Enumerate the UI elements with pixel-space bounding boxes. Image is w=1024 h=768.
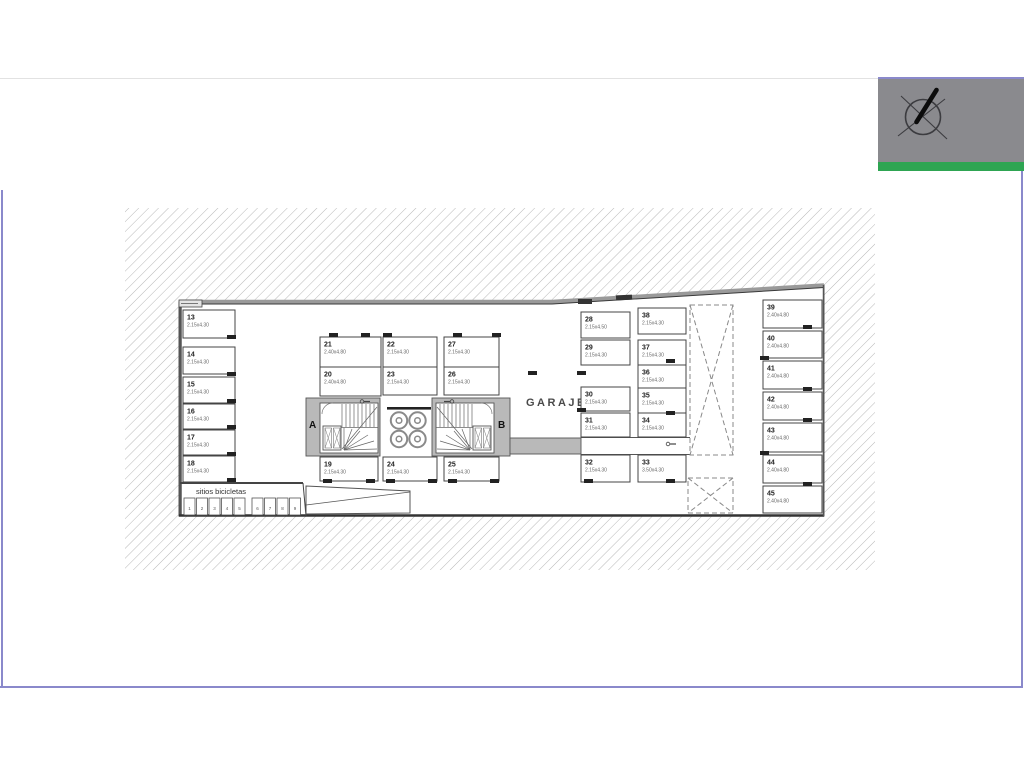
stall-32: 322.15x4.30 (581, 455, 630, 482)
stall-45: 452.40x4.80 (763, 486, 822, 513)
corner-tag (179, 300, 202, 307)
column-marker (803, 325, 812, 329)
stall-number: 31 (585, 418, 593, 425)
bike-slot: 1 (184, 498, 195, 515)
stall-number: 44 (767, 460, 775, 467)
stall-number: 40 (767, 336, 775, 343)
stall-number: 25 (448, 462, 456, 469)
bike-area-label: sitios bicicletas (196, 487, 246, 496)
stall-number: 43 (767, 428, 775, 435)
stall-dimension: 2.15x4.30 (448, 470, 470, 476)
stall-dimension: 2.15x4.30 (187, 443, 209, 449)
stall-number: 33 (642, 460, 650, 467)
stall-number: 28 (585, 317, 593, 324)
stall-29: 292.15x4.30 (581, 340, 630, 365)
stall-number: 30 (585, 392, 593, 399)
column-marker (453, 333, 462, 337)
stall-number: 32 (585, 460, 593, 467)
stall-number: 14 (187, 352, 195, 359)
stall-number: 23 (387, 372, 395, 379)
stall-dimension: 2.15x4.50 (585, 325, 607, 331)
stall-dimension: 2.40x4.80 (767, 405, 789, 411)
stall-number: 16 (187, 409, 195, 416)
column-marker (227, 372, 236, 376)
stall-36: 362.15x4.30 (638, 365, 686, 388)
stall-number: 26 (448, 372, 456, 379)
stall-19: 192.15x4.30 (320, 457, 378, 481)
stall-dimension: 2.40x4.80 (767, 468, 789, 474)
stall-dimension: 2.40x4.80 (324, 350, 346, 356)
bike-slot: 3 (209, 498, 220, 515)
stall-34: 342.15x4.30 (638, 413, 686, 437)
stair-core-b: B (432, 398, 510, 456)
page: A (0, 0, 1024, 768)
garaje-label: GARAJE (526, 397, 587, 409)
column-marker (383, 333, 392, 337)
column-marker (361, 333, 370, 337)
stall-35: 352.15x4.30 (638, 388, 686, 413)
stall-dimension: 2.15x4.30 (642, 321, 664, 327)
stall-number: 22 (387, 342, 395, 349)
column-marker (492, 333, 501, 337)
column-marker (386, 479, 395, 483)
stall-number: 24 (387, 462, 395, 469)
stall-41: 412.40x4.80 (763, 361, 822, 389)
stall-number: 39 (767, 305, 775, 312)
column-marker (666, 411, 675, 415)
stall-dimension: 2.40x4.80 (767, 374, 789, 380)
stall-33: 333.50x4.30 (638, 455, 686, 482)
stall-dimension: 2.40x4.80 (767, 313, 789, 319)
column-marker (577, 408, 586, 412)
stall-number: 15 (187, 382, 195, 389)
column-marker (577, 371, 586, 375)
column-marker (760, 356, 769, 360)
column-marker (760, 451, 769, 455)
stall-dimension: 2.15x4.30 (585, 426, 607, 432)
column-marker (528, 371, 537, 375)
stall-13: 132.15x4.30 (183, 310, 235, 338)
stall-number: 35 (642, 393, 650, 400)
stall-number: 38 (642, 313, 650, 320)
stall-17: 172.15x4.30 (183, 430, 235, 455)
stall-27: 272.15x4.30 (444, 337, 499, 367)
stall-dimension: 2.15x4.30 (448, 380, 470, 386)
column-marker (227, 425, 236, 429)
stall-dimension: 2.15x4.30 (585, 468, 607, 474)
entrance-ramp (306, 486, 410, 514)
bike-slot: 8 (277, 498, 288, 515)
bike-slot: 5 (234, 498, 245, 515)
stair-core-b-label: B (498, 420, 505, 431)
stall-dimension: 2.15x4.30 (387, 380, 409, 386)
stall-number: 37 (642, 345, 650, 352)
stall-number: 42 (767, 397, 775, 404)
stall-26: 262.15x4.30 (444, 367, 499, 395)
stall-dimension: 2.15x4.30 (187, 390, 209, 396)
stall-dimension: 2.15x4.30 (448, 350, 470, 356)
stall-number: 29 (585, 345, 593, 352)
stall-42: 422.40x4.80 (763, 392, 822, 420)
bike-slot: 2 (197, 498, 208, 515)
stall-24: 242.15x4.30 (383, 457, 437, 481)
column-marker (666, 479, 675, 483)
stall-28: 282.15x4.50 (581, 312, 630, 338)
column-marker (329, 333, 338, 337)
stall-dimension: 2.15x4.30 (324, 470, 346, 476)
stall-number: 20 (324, 372, 332, 379)
top-wall-stub (616, 295, 632, 301)
column-marker (490, 479, 499, 483)
stall-20: 202.40x4.80 (320, 367, 381, 396)
stall-14: 142.15x4.30 (183, 347, 235, 374)
stall-30: 302.15x4.30 (581, 387, 630, 411)
stall-43: 432.40x4.80 (763, 423, 822, 452)
column-marker (227, 399, 236, 403)
corridor (510, 438, 581, 454)
stall-dimension: 3.50x4.30 (642, 468, 664, 474)
column-marker (366, 479, 375, 483)
column-marker (803, 387, 812, 391)
stall-dimension: 2.15x4.30 (187, 323, 209, 329)
column-marker (666, 359, 675, 363)
stall-dimension: 2.15x4.30 (642, 426, 664, 432)
elevator-a-icon (323, 426, 341, 450)
column-marker (428, 479, 437, 483)
stall-25: 252.15x4.30 (444, 457, 499, 481)
stall-dimension: 2.15x4.30 (585, 400, 607, 406)
stall-outline (638, 365, 686, 388)
stall-dimension: 2.15x4.30 (642, 353, 664, 359)
column-marker (584, 479, 593, 483)
stall-39: 392.40x4.80 (763, 300, 822, 328)
elevator-b-icon (473, 426, 491, 450)
stall-dimension: 2.15x4.30 (387, 350, 409, 356)
stall-dimension: 2.40x4.80 (767, 436, 789, 442)
stair-core-a-label: A (309, 420, 316, 431)
stall-23: 232.15x4.30 (383, 367, 437, 395)
column-marker (227, 478, 236, 482)
floor-plan-svg: A (0, 0, 1024, 768)
column-marker (803, 482, 812, 486)
stall-31: 312.15x4.30 (581, 413, 630, 437)
stall-number: 34 (642, 418, 650, 425)
stall-21: 212.40x4.80 (320, 337, 381, 367)
stall-38: 382.15x4.30 (638, 308, 686, 334)
stall-dimension: 2.40x4.80 (324, 380, 346, 386)
bike-slot: 6 (252, 498, 263, 515)
stall-number: 18 (187, 461, 195, 468)
stall-dimension: 2.15x4.30 (187, 469, 209, 475)
stall-number: 17 (187, 435, 195, 442)
stall-dimension: 2.15x4.30 (387, 470, 409, 476)
bike-slot: 7 (265, 498, 276, 515)
bike-slot: 9 (290, 498, 301, 515)
stall-dimension: 2.15x4.30 (642, 401, 664, 407)
stall-number: 27 (448, 342, 456, 349)
column-marker (323, 479, 332, 483)
column-marker (803, 418, 812, 422)
stall-number: 19 (324, 462, 332, 469)
stall-44: 442.40x4.80 (763, 455, 822, 483)
stall-number: 41 (767, 366, 775, 373)
stall-number: 45 (767, 491, 775, 498)
stall-dimension: 2.15x4.30 (187, 417, 209, 423)
column-marker (448, 479, 457, 483)
stall-dimension: 2.40x4.80 (767, 499, 789, 505)
stair-core-a: A (306, 398, 380, 456)
stall-dimension: 2.15x4.30 (585, 353, 607, 359)
stall-number: 21 (324, 342, 332, 349)
stall-dimension: 2.40x4.80 (767, 344, 789, 350)
column-marker (227, 452, 236, 456)
column-marker (227, 335, 236, 339)
top-wall-stub (578, 299, 592, 304)
stall-number: 13 (187, 315, 195, 322)
stall-22: 222.15x4.30 (383, 337, 437, 367)
stall-37: 372.15x4.30 (638, 340, 686, 365)
stall-40: 402.40x4.80 (763, 331, 822, 358)
stall-dimension: 2.15x4.30 (187, 360, 209, 366)
stall-dimension: 2.15x4.30 (642, 378, 664, 384)
stall-number: 36 (642, 370, 650, 377)
bike-slot: 4 (222, 498, 233, 515)
beam (387, 407, 431, 410)
